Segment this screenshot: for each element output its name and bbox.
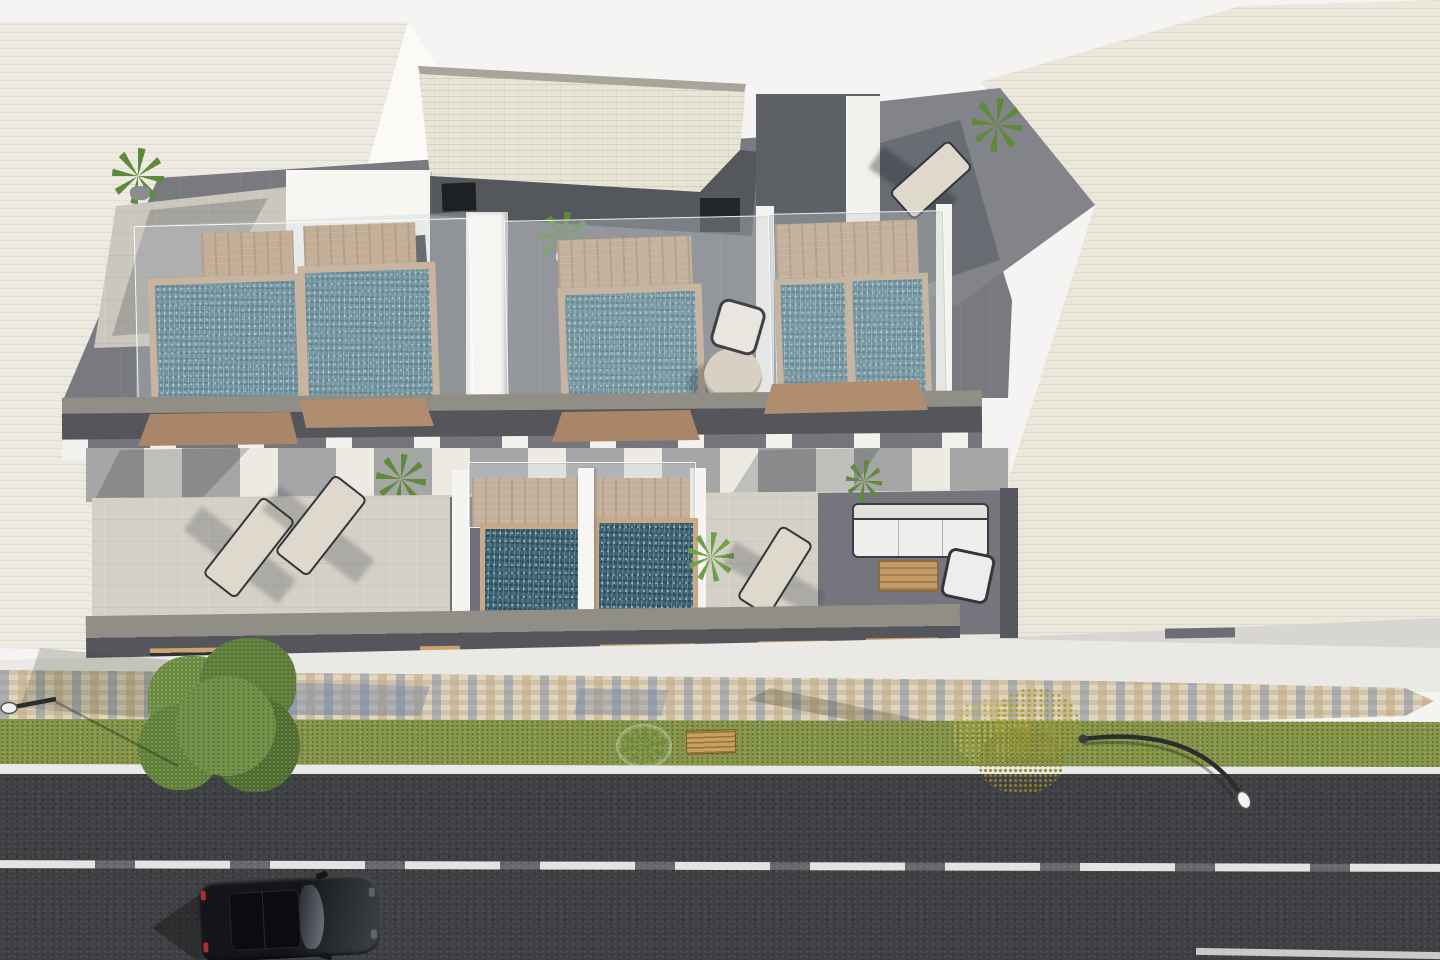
car: [198, 873, 382, 960]
car-taillight-bottom: [203, 942, 209, 952]
street-lamps: [0, 0, 1440, 960]
lamp-east-shadow: [1083, 743, 1234, 799]
lamp-west-head: [1, 703, 17, 714]
car-headlight-top: [369, 888, 375, 897]
lamp-east-pole: [1083, 737, 1240, 793]
car-headlight-bottom: [371, 929, 377, 938]
car-taillight-top: [200, 890, 206, 900]
lamp-east-base: [1079, 735, 1088, 744]
lamp-west-shadow: [56, 702, 178, 766]
car-sunroof: [229, 890, 302, 952]
architectural-render: [0, 0, 1440, 960]
